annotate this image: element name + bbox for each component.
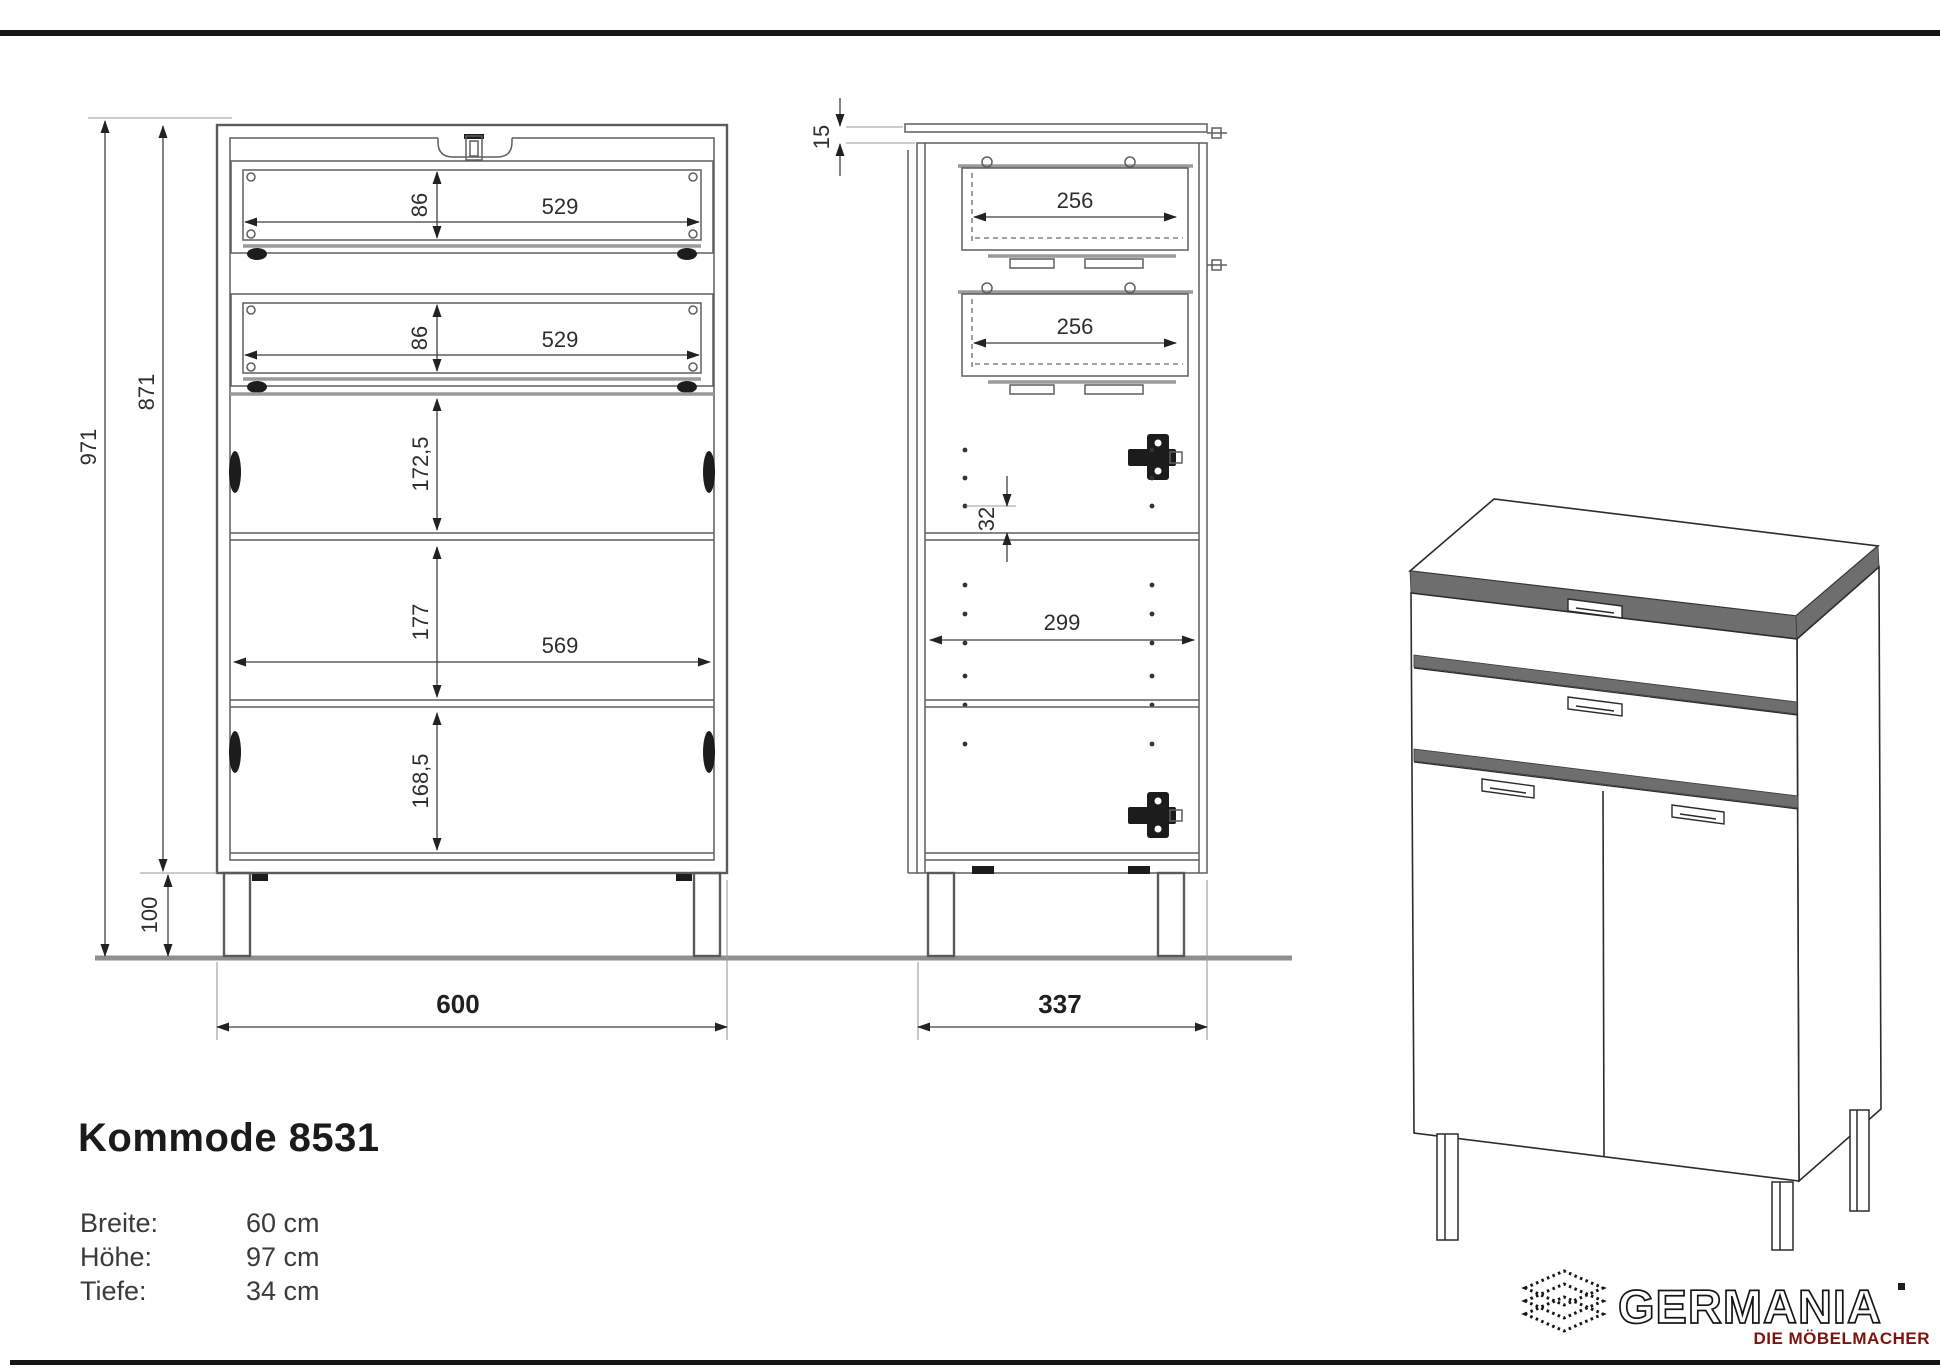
hinge (1128, 434, 1182, 480)
dim-upper-compartment: 172,5 (408, 399, 437, 530)
spec-value: 60 cm (246, 1206, 366, 1240)
drawer-outline (231, 294, 713, 386)
spec-value: 34 cm (246, 1274, 366, 1308)
trademark-dot (1898, 1283, 1905, 1290)
hinge-mark (703, 451, 715, 493)
drawer-front-1 (231, 161, 713, 260)
spec-row-tiefe: Tiefe: 34 cm (80, 1274, 366, 1308)
dim-total-width: 600 (217, 989, 727, 1027)
leg-clip (252, 874, 268, 881)
leg-clip (676, 874, 692, 881)
dim-drawer1-depth: 256 (974, 188, 1176, 217)
dim-label: 32 (974, 507, 999, 531)
spec-row-hoehe: Höhe: 97 cm (80, 1240, 366, 1274)
dim-label: 100 (137, 897, 162, 934)
hinge (1128, 792, 1182, 838)
dim-label: 299 (1044, 610, 1081, 635)
drawer-front-2 (231, 294, 713, 393)
dim-label: 337 (1038, 989, 1081, 1019)
leg (694, 873, 720, 956)
leg-clip (972, 866, 994, 874)
slide-clip (677, 381, 697, 393)
shelf-pin-holes (963, 448, 1155, 747)
brand-tagline: DIE MÖBELMACHER (1753, 1329, 1930, 1348)
dim-label: 569 (542, 633, 579, 658)
dim-label: 529 (542, 327, 579, 352)
drawer-outline (231, 161, 713, 253)
dim-interior-width: 569 (234, 633, 710, 662)
dim-label: 86 (407, 193, 432, 217)
dim-label: 600 (436, 989, 479, 1019)
perspective-view (1410, 499, 1881, 1250)
leg (928, 873, 954, 956)
spec-label: Tiefe: (80, 1274, 246, 1308)
dim-label: 529 (542, 194, 579, 219)
product-title: Kommode 8531 (78, 1116, 380, 1161)
dim-label: 15 (809, 125, 834, 149)
dim-drawer1-height: 86 (407, 172, 437, 238)
drawer-inner (243, 303, 701, 373)
spec-row-breite: Breite: 60 cm (80, 1206, 366, 1240)
leg (1158, 873, 1184, 956)
dim-label: 168,5 (408, 753, 433, 808)
dim-drawer2-height: 86 (407, 305, 437, 371)
hinge-mark (229, 451, 241, 493)
leg-clip (1128, 866, 1150, 874)
technical-drawing-page: 971 871 100 86 529 86 (0, 0, 1940, 1372)
carcass-outline (217, 125, 727, 873)
dim-drawer1-width: 529 (245, 194, 699, 222)
spec-value: 97 cm (246, 1240, 366, 1274)
dim-label: 871 (134, 374, 159, 411)
hinge-mark (703, 731, 715, 773)
side-face (1797, 567, 1881, 1181)
dim-drawer2-depth: 256 (974, 314, 1176, 343)
dim-total-height: 971 (76, 121, 105, 956)
side-carcass (917, 143, 1207, 873)
handle-inner (470, 141, 478, 156)
slide-clip (247, 248, 267, 260)
slide-clip (247, 381, 267, 393)
dim-lower-compartment: 168,5 (408, 713, 437, 850)
top-panel (905, 124, 1207, 132)
brand-name: GERMANIA (1618, 1280, 1882, 1333)
leg (224, 873, 250, 956)
dim-leg-height: 100 (137, 875, 168, 956)
door-split-line (1603, 791, 1604, 1157)
spec-table: Breite: 60 cm Höhe: 97 cm Tiefe: 34 cm (80, 1206, 366, 1308)
dim-total-depth: 337 (918, 989, 1207, 1027)
front-view: 971 871 100 86 529 86 (76, 118, 727, 1040)
dim-label: 172,5 (408, 436, 433, 491)
dim-label: 256 (1057, 314, 1094, 339)
hinge-mark (229, 731, 241, 773)
dim-drawer2-width: 529 (245, 327, 699, 355)
dim-carcass-height: 871 (134, 126, 163, 871)
dim-label: 971 (76, 429, 101, 466)
dim-interior-depth: 299 (930, 610, 1194, 640)
dim-hole-pitch: 32 (966, 476, 1016, 562)
slide-clip (677, 248, 697, 260)
wall-bracket (1207, 128, 1227, 270)
dim-label: 177 (408, 604, 433, 641)
side-view: 256 256 (809, 98, 1227, 1040)
brand-logo: GERMANIA DIE MÖBELMACHER (1525, 1271, 1930, 1348)
dim-label: 256 (1057, 188, 1094, 213)
spec-label: Höhe: (80, 1240, 246, 1274)
dim-middle-compartment: 177 (408, 547, 437, 697)
dim-label: 86 (407, 326, 432, 350)
drawer-inner (243, 170, 701, 240)
germania-layers-icon (1525, 1271, 1603, 1331)
spec-label: Breite: (80, 1206, 246, 1240)
drawing-canvas: 971 871 100 86 529 86 (0, 0, 1940, 1372)
dim-top-overhang: 15 (809, 98, 915, 176)
